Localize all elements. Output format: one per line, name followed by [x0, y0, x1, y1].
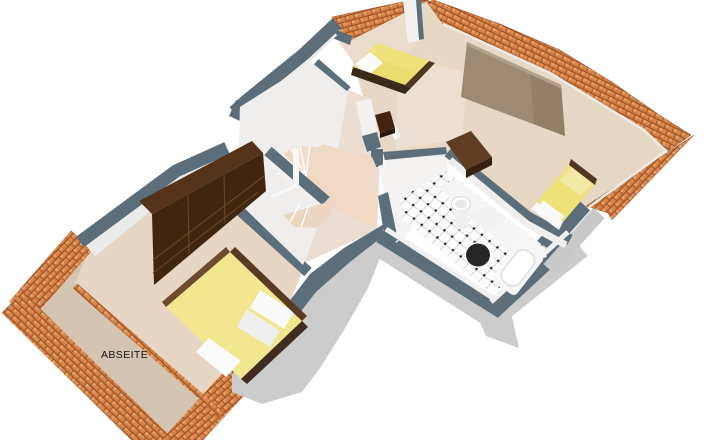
svg-text:ABSEITE: ABSEITE — [101, 349, 148, 361]
